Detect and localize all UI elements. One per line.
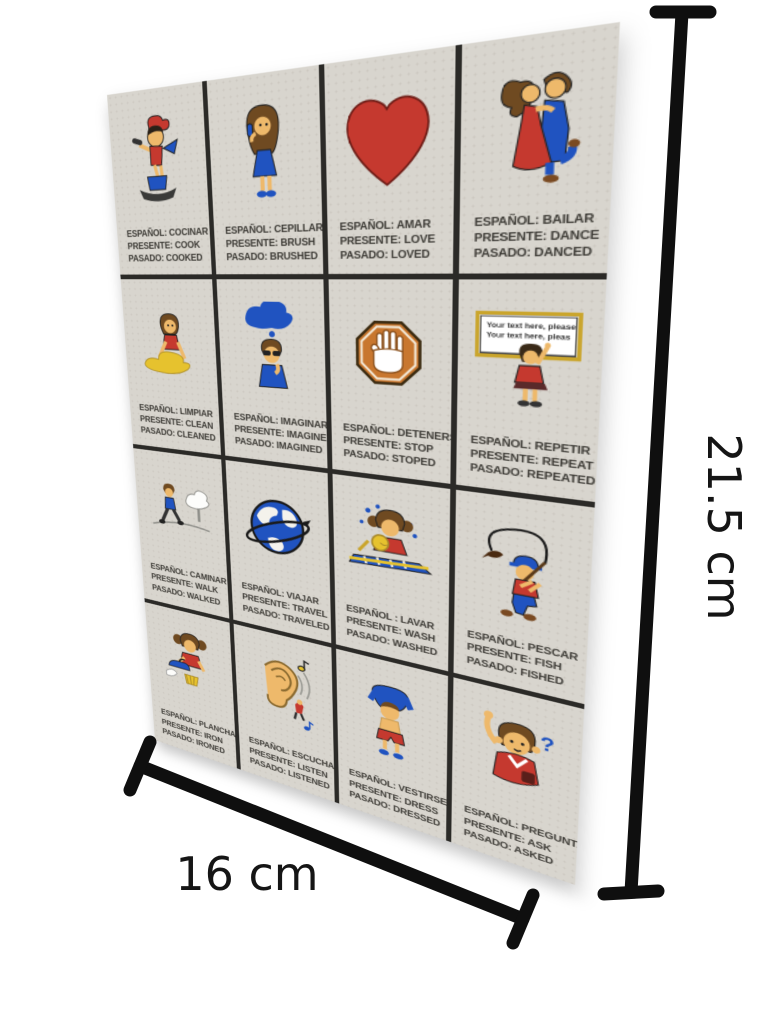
cell-viajar: ESPAÑOL: VIAJAR PRESENTE: TRAVEL PASADO:… <box>226 460 331 643</box>
heart-icon <box>328 54 450 220</box>
fishing-icon <box>458 496 589 653</box>
width-ruler-right-cap <box>513 895 533 943</box>
product-photo-scene: ESPAÑOL: COCINAR PRESENTE: COOK PASADO: … <box>0 0 768 1024</box>
width-dimension-label: 16 cm <box>175 847 318 901</box>
imagining-icon <box>221 285 322 419</box>
dancing-couple-icon <box>464 31 613 215</box>
flashcard: ESPAÑOL: COCINAR PRESENTE: COOK PASADO: … <box>107 22 620 885</box>
whiteboard-icon: Your text here, please Your text here, p… <box>461 287 600 445</box>
cell-caminar: ESPAÑOL: CAMINAR PRESENTE: WALK PASADO: … <box>133 448 229 619</box>
past-line: PASADO: BRUSHED <box>226 249 318 264</box>
width-ruler-left-cap <box>130 742 150 790</box>
globe-icon <box>229 465 326 598</box>
cell-lavar: ESPAÑOL : LAVAR PRESENTE: WASH PASADO: W… <box>332 473 450 671</box>
cell-repetir: Your text here, please Your text here, p… <box>456 280 607 502</box>
walking-icon <box>137 453 225 577</box>
present-line: PRESENTE: LOVE <box>340 231 448 249</box>
cell-preguntar: ? ESPAÑOL: PREGUNTAR PRESENTE: ASK PASAD… <box>451 677 584 885</box>
cell-imaginar: ESPAÑOL: IMAGINAR PRESENTE: IMAGINE PASA… <box>217 280 327 468</box>
height-ruler-bottom-cap <box>604 891 658 894</box>
height-dimension-label: 21.5 cm <box>697 433 751 620</box>
caption-bailar: ESPAÑOL: BAILAR PRESENTE: DANCE PASADO: … <box>464 210 605 262</box>
cell-cocinar: ESPAÑOL: COCINAR PRESENTE: COOK PASADO: … <box>107 81 212 274</box>
cell-limpiar: ESPAÑOL: LIMPIAR PRESENTE: CLEAN PASADO:… <box>121 279 221 454</box>
cell-planchar: ESPAÑOL: PLANCHAR PRESENTE: IRON PASADO:… <box>145 602 237 768</box>
cell-cepillar: ESPAÑOL: CEPILLAR PRESENTE: BRUSH PASADO… <box>207 65 323 275</box>
cell-amar: ESPAÑOL: AMAR PRESENTE: LOVE PASADO: LOV… <box>324 45 456 274</box>
cell-bailar: ESPAÑOL: BAILAR PRESENTE: DANCE PASADO: … <box>459 22 620 274</box>
caption-amar: ESPAÑOL: AMAR PRESENTE: LOVE PASADO: LOV… <box>331 216 448 264</box>
cell-detenerse: ESPAÑOL: DETENERSE PRESENTE: STOP PASADO… <box>328 280 452 484</box>
caption-cocinar: ESPAÑOL: COCINAR PRESENTE: COOK PASADO: … <box>120 225 208 265</box>
caption-limpiar: ESPAÑOL: LIMPIAR PRESENTE: CLEAN PASADO:… <box>133 402 218 446</box>
cleaning-icon <box>124 285 215 409</box>
past-line: PASADO: DANCED <box>474 244 603 262</box>
cell-escuchar: ESPAÑOL: ESCUCHAR PRESENTE: LISTEN PASAD… <box>234 624 335 802</box>
cell-vestirse: ESPAÑOL: VESTIRSE PRESENTE: DRESS PASADO… <box>336 648 448 840</box>
dish-washing-icon <box>336 480 445 624</box>
caption-imaginar: ESPAÑOL: IMAGINAR PRESENTE: IMAGINE PASA… <box>227 410 323 457</box>
cell-pescar: ESPAÑOL: PESCAR PRESENTE: FISH PASADO: F… <box>453 489 594 704</box>
height-ruler-line <box>631 13 682 892</box>
flashcard-grid: ESPAÑOL: COCINAR PRESENTE: COOK PASADO: … <box>107 22 620 885</box>
question-mark: ? <box>540 733 555 758</box>
cooking-icon <box>111 88 206 228</box>
hair-brushing-icon <box>211 73 318 225</box>
stop-hand-icon <box>332 286 447 431</box>
caption-cepillar: ESPAÑOL: CEPILLAR PRESENTE: BRUSH PASADO… <box>218 221 319 265</box>
past-line: PASADO: COOKED <box>128 252 208 266</box>
past-line: PASADO: LOVED <box>340 247 448 263</box>
